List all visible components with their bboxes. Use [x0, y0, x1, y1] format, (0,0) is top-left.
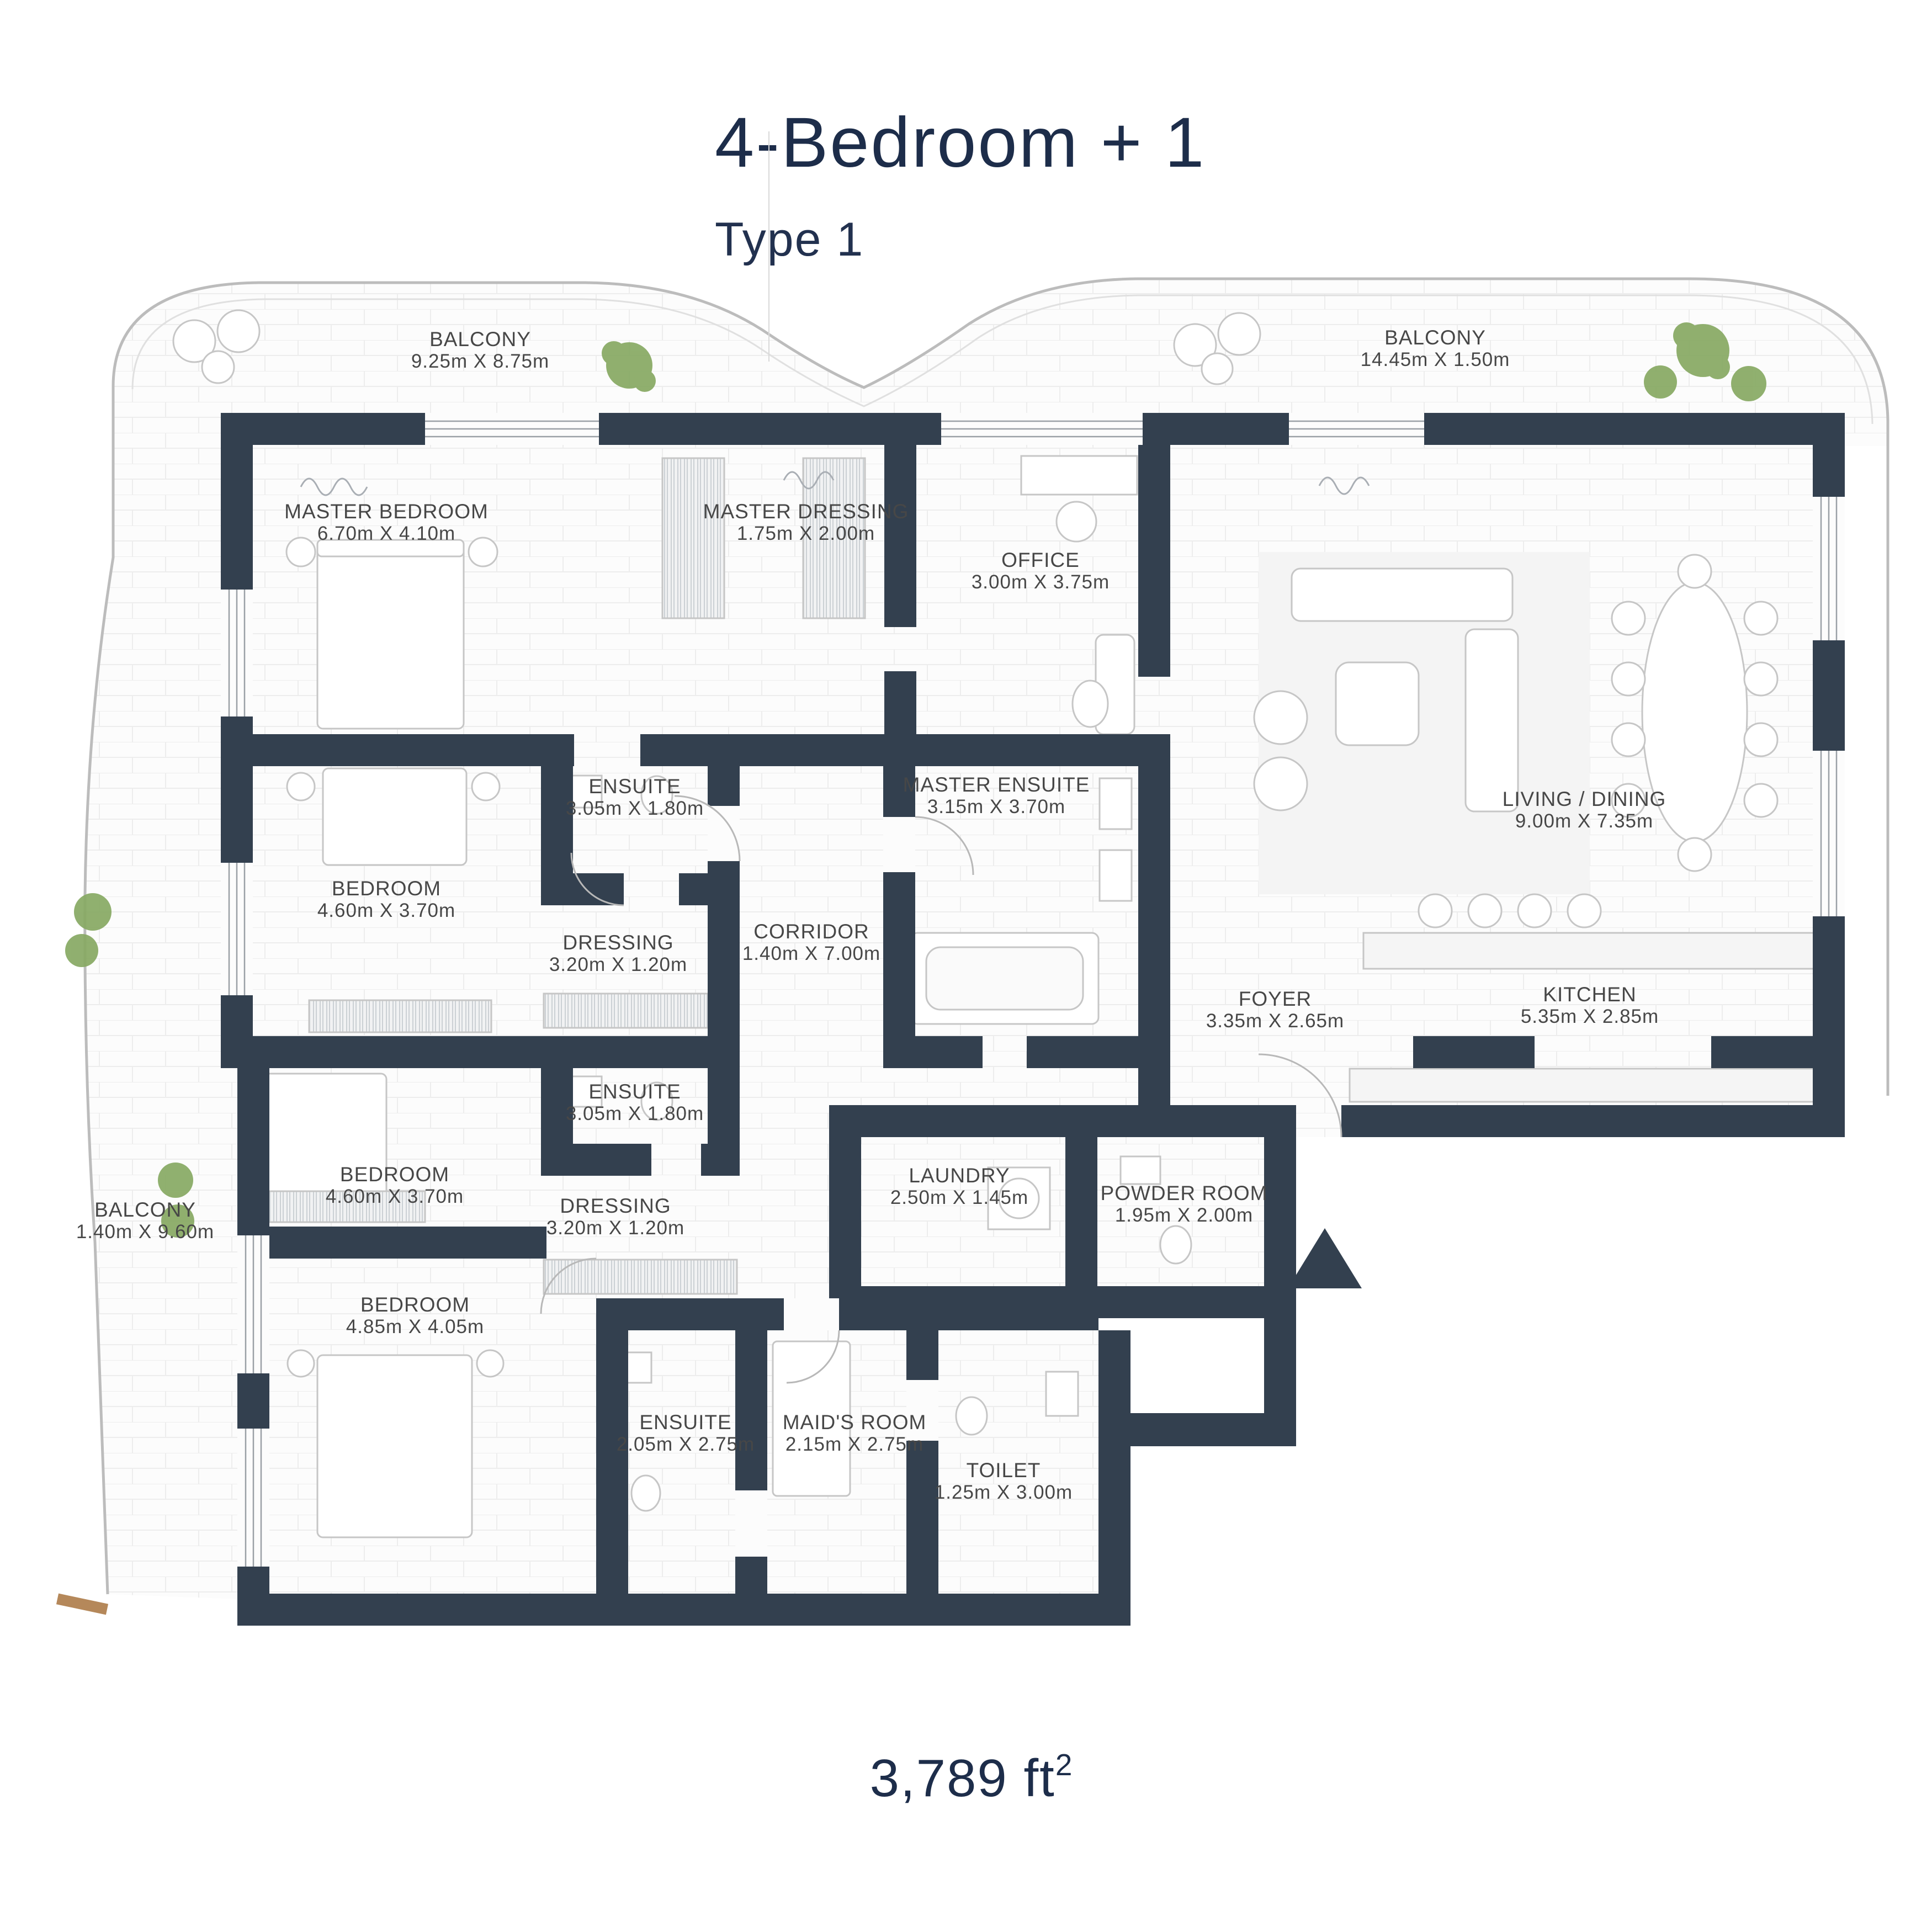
room-label-maids-room: MAID'S ROOM2.15m X 2.75m: [783, 1411, 927, 1456]
tree-icon: [74, 893, 112, 931]
tree-icon: [158, 1163, 193, 1198]
room-label-master-dressing: MASTER DRESSING1.75m X 2.00m: [703, 501, 909, 545]
room-label-balcony-left: BALCONY1.40m X 9.60m: [76, 1199, 214, 1243]
room-label-bedroom-1: BEDROOM4.60m X 3.70m: [317, 878, 455, 922]
floorplan-page: 4-Bedroom + 1 Type 1: [0, 0, 1932, 1932]
room-label-dressing-1: DRESSING3.20m X 1.20m: [549, 932, 687, 976]
room-label-balcony-top-right: BALCONY14.45m X 1.50m: [1361, 327, 1510, 371]
room-label-master-bedroom: MASTER BEDROOM6.70m X 4.10m: [284, 501, 489, 545]
bedroom3-bed: [288, 1350, 503, 1537]
room-label-office: OFFICE3.00m X 3.75m: [972, 549, 1110, 593]
room-label-living-dining: LIVING / DINING9.00m X 7.35m: [1503, 788, 1666, 832]
floor-plan-drawing: [0, 0, 1932, 1932]
room-label-foyer: FOYER3.35m X 2.65m: [1206, 988, 1344, 1032]
total-area: 3,789 ft2: [870, 1747, 1074, 1809]
room-label-ensuite-1: ENSUITE3.05m X 1.80m: [566, 776, 704, 820]
tree-icon: [1731, 366, 1766, 401]
entrance-triangle-icon: [1288, 1228, 1362, 1288]
room-label-corridor: CORRIDOR1.40m X 7.00m: [742, 921, 880, 965]
room-label-bedroom-2: BEDROOM4.60m X 3.70m: [326, 1164, 464, 1208]
room-label-ensuite-2: ENSUITE3.05m X 1.80m: [566, 1081, 704, 1125]
room-label-master-ensuite: MASTER ENSUITE3.15m X 3.70m: [903, 774, 1090, 818]
room-label-kitchen: KITCHEN5.35m X 2.85m: [1521, 984, 1659, 1028]
tree-icon: [1644, 365, 1677, 399]
room-label-dressing-2: DRESSING3.20m X 1.20m: [546, 1195, 684, 1239]
tree-icon: [65, 934, 98, 967]
room-label-ensuite-3: ENSUITE2.05m X 2.75m: [617, 1411, 755, 1456]
room-label-toilet: TOILET1.25m X 3.00m: [935, 1459, 1073, 1504]
room-label-bedroom-3: BEDROOM4.85m X 4.05m: [346, 1294, 484, 1338]
room-label-laundry: LAUNDRY2.50m X 1.45m: [890, 1165, 1028, 1209]
room-label-balcony-top-left: BALCONY9.25m X 8.75m: [411, 328, 549, 373]
wood-deck-strip: [56, 1594, 108, 1615]
room-label-powder-room: POWDER ROOM1.95m X 2.00m: [1101, 1182, 1268, 1227]
